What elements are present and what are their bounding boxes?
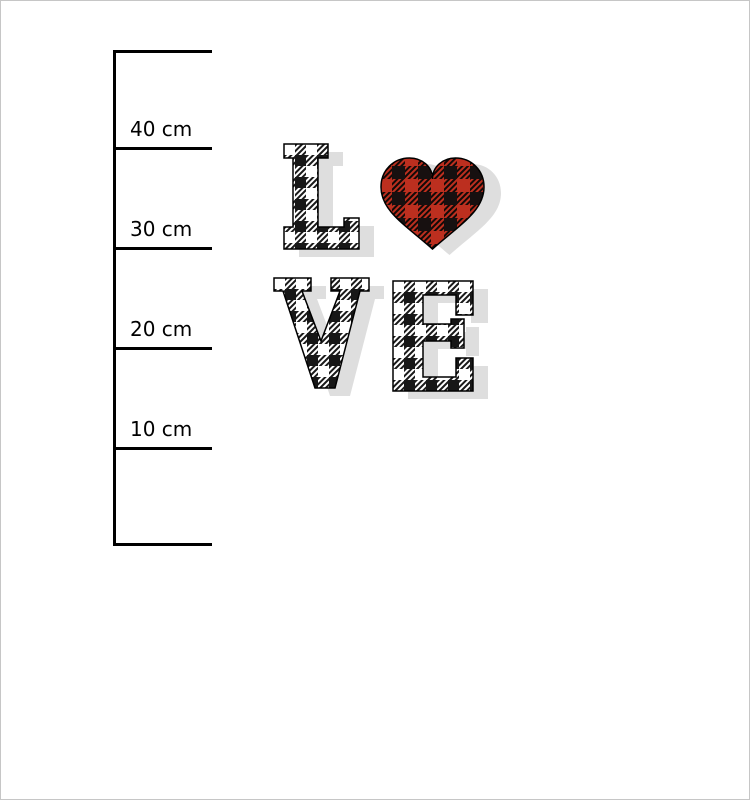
design-plaid-layer — [274, 144, 484, 391]
fabric-panel-mockup: 40 cm 30 cm 20 cm 10 cm — [0, 0, 750, 800]
ruler-tick-bottom — [113, 543, 212, 546]
love-plaid-design — [261, 131, 511, 401]
ruler-label-20cm: 20 cm — [130, 317, 220, 341]
ruler-label-10cm: 10 cm — [130, 417, 220, 441]
ruler-tick-30cm — [113, 247, 212, 250]
measurement-ruler: 40 cm 30 cm 20 cm 10 cm — [1, 1, 261, 601]
ruler-tick-40cm — [113, 147, 212, 150]
ruler-label-40cm: 40 cm — [130, 117, 220, 141]
ruler-label-30cm: 30 cm — [130, 217, 220, 241]
ruler-tick-20cm — [113, 347, 212, 350]
ruler-tick-top — [113, 50, 212, 53]
ruler-tick-10cm — [113, 447, 212, 450]
ruler-vertical-line — [113, 50, 116, 546]
